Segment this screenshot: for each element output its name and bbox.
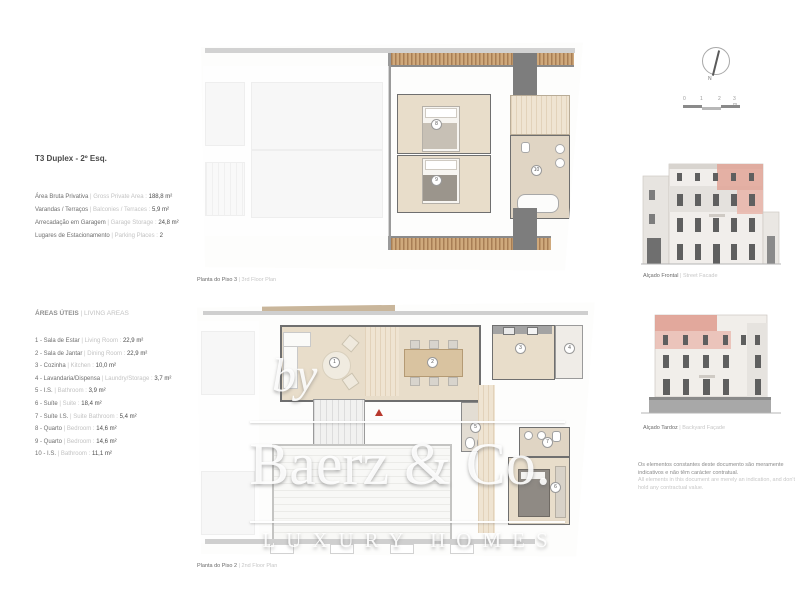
area-row: 10 - I.S. | Bathroom : 11,1 m² (35, 448, 171, 461)
area-label-en: | Bedroom : (64, 426, 95, 432)
summary-block: Área Bruta Privativa | Gross Private Are… (35, 191, 179, 243)
watermark-rule (250, 521, 565, 523)
terrace-edge (262, 303, 395, 311)
window (677, 244, 683, 260)
summary-row: Área Bruta Privativa | Gross Private Are… (35, 191, 179, 204)
storefront (647, 238, 661, 264)
area-label-pt: 5 - I.S. (35, 388, 53, 394)
scale-tick: 2 (718, 96, 721, 102)
scale-tick: 1 (700, 96, 703, 102)
window (755, 379, 761, 395)
highlight-unit-area (717, 164, 763, 190)
area-value: 14,6 m² (96, 439, 116, 445)
pillow (425, 160, 457, 170)
window (723, 379, 729, 395)
window (741, 335, 746, 345)
neighbour-unit (203, 66, 389, 236)
window (663, 355, 669, 368)
balcony (699, 375, 715, 378)
entrance-marker (375, 409, 383, 416)
living-areas-list: 1 - Sala de Estar | Living Room : 22,9 m… (35, 335, 171, 461)
summary-row: Arrecadação em Garagem | Garage Storage … (35, 217, 179, 230)
window (663, 379, 670, 395)
window (713, 194, 719, 206)
window (723, 355, 729, 368)
door (703, 379, 710, 395)
chair (448, 340, 458, 349)
shaft (513, 208, 537, 250)
area-label-en: | Bedroom : (64, 439, 95, 445)
area-label-en: | Suite Bathroom : (70, 414, 118, 420)
area-label-pt: 7 - Suíte I.S. (35, 414, 68, 420)
window (731, 218, 737, 232)
compass-icon (702, 47, 730, 75)
area-label-pt: 8 - Quarto (35, 426, 62, 432)
window (713, 173, 718, 181)
area-label-pt: 6 - Suíte (35, 401, 58, 407)
area-row: 9 - Quarto | Bedroom : 14,6 m² (35, 436, 171, 449)
area-row: 4 - Lavandaria/Dispensa | Laundry/Storag… (35, 373, 171, 386)
area-value: 11,1 m² (92, 451, 112, 457)
area-value: 5,4 m² (120, 414, 137, 420)
entry-door (713, 244, 720, 264)
chair (429, 377, 439, 386)
room-badge: 10 (531, 165, 542, 176)
area-label-en: | Bathroom : (58, 451, 91, 457)
floor2-caption: Planta do Piso 2 | 2nd Floor Plan (197, 563, 277, 569)
heading-en: | LIVING AREAS (81, 310, 129, 317)
disclaimer-en: All elements in this document are merely… (638, 477, 796, 492)
area-value: 3,9 m² (89, 388, 106, 394)
toilet (521, 142, 530, 153)
area-label-pt: 10 - I.S. (35, 451, 56, 457)
scale-tick: 0 (683, 96, 686, 102)
room-badge: 3 (515, 343, 526, 354)
window (731, 173, 736, 181)
window (749, 194, 755, 206)
bathroom-10 (510, 135, 570, 219)
scale-segment (702, 107, 721, 110)
summary-row: Lugares de Estacionamento | Parking Plac… (35, 230, 179, 243)
area-row: 1 - Sala de Estar | Living Room : 22,9 m… (35, 335, 171, 348)
staircase (510, 95, 570, 135)
brochure-page: T3 Duplex - 2º Esq. Área Bruta Privativa… (0, 0, 800, 600)
caption-en: | Street Facade (680, 273, 718, 279)
window (683, 335, 688, 345)
watermark-tagline: LUXURY HOMES (240, 528, 570, 553)
area-label-en: | Bathroom : (54, 388, 87, 394)
wood-floor-band (365, 327, 399, 396)
area-label-pt: 1 - Sala de Estar (35, 338, 80, 344)
window (695, 194, 701, 206)
floor-plan-3: 8 9 10 (195, 40, 595, 273)
window (695, 244, 701, 260)
window (683, 379, 689, 395)
area-label-pt: 3 - Cozinha (35, 363, 66, 369)
scale-bar: 0 1 2 3 m (683, 96, 741, 112)
caption-en: | 2nd Floor Plan (239, 563, 278, 569)
garage-door (767, 236, 775, 264)
sofa-chaise (283, 332, 311, 347)
wall-cap (649, 397, 771, 400)
area-row: 3 - Cozinha | Kitchen : 10,0 m² (35, 360, 171, 373)
unit-floor3: 8 9 10 (389, 66, 581, 236)
chair (448, 377, 458, 386)
area-value: 22,9 m² (127, 351, 147, 357)
summary-label-pt: Arrecadação em Garagem (35, 220, 106, 226)
summary-label-en: | Gross Private Area : (90, 194, 147, 200)
window (683, 355, 689, 368)
window (749, 173, 754, 181)
caption-en: | Backyard Façade (679, 425, 725, 431)
back-elevation-drawing (641, 303, 781, 421)
caption-pt: Alçado Frontal (643, 273, 678, 279)
room-badge: 9 (431, 175, 442, 186)
sink (555, 158, 565, 168)
summary-label-en: | Garage Storage : (107, 220, 156, 226)
fade-overlay (203, 66, 389, 236)
compass-north-label: N (708, 76, 712, 82)
area-label-pt: 9 - Quarto (35, 439, 62, 445)
area-label-en: | Living Room : (81, 338, 121, 344)
watermark-brand: Baerz & Co. (235, 430, 565, 499)
summary-row: Varandas / Terraços | Balconies / Terrac… (35, 204, 179, 217)
balcony (709, 214, 725, 217)
caption-pt: Planta do Piso 2 (197, 563, 237, 569)
summary-label-en: | Balconies / Terraces : (90, 207, 150, 213)
room-badge: 2 (427, 357, 438, 368)
window (755, 335, 760, 345)
window (677, 218, 683, 232)
area-value: 14,6 m² (96, 426, 116, 432)
area-row: 2 - Sala de Jantar | Dining Room : 22,9 … (35, 348, 171, 361)
room-badge: 1 (329, 357, 340, 368)
summary-value: 188,8 m² (149, 194, 173, 200)
living-areas-heading: ÁREAS ÚTEIS | LIVING AREAS (35, 310, 129, 317)
wall (203, 311, 588, 315)
watermark-by: by (272, 348, 317, 403)
area-row: 5 - I.S. | Bathroom : 3,9 m² (35, 385, 171, 398)
back-elevation-caption: Alçado Tardoz | Backyard Façade (643, 425, 725, 431)
window (695, 173, 700, 181)
pillow (425, 108, 457, 118)
armchair (341, 334, 359, 352)
shaft (513, 53, 537, 95)
area-label-pt: 4 - Lavandaria/Dispensa (35, 376, 100, 382)
heading-pt: ÁREAS ÚTEIS (35, 310, 79, 317)
compass-needle (712, 50, 720, 76)
window (649, 214, 655, 224)
floor3-caption: Planta do Piso 3 | 3rd Floor Plan (197, 277, 276, 283)
area-row: 7 - Suíte I.S. | Suite Bathroom : 5,4 m² (35, 411, 171, 424)
area-label-en: | Kitchen : (67, 363, 94, 369)
summary-value: 5,9 m² (152, 207, 169, 213)
kitchen-counter (493, 326, 552, 334)
disclaimer-pt: Os elementos constantes deste documento … (638, 462, 796, 477)
chair (429, 340, 439, 349)
watermark-rule (250, 421, 565, 423)
sink (555, 144, 565, 154)
window (723, 335, 728, 345)
window (713, 218, 719, 232)
hob (503, 327, 515, 335)
area-value: 18,4 m² (81, 401, 101, 407)
unit-title: T3 Duplex - 2º Esq. (35, 154, 107, 163)
chair (410, 340, 420, 349)
window (677, 194, 683, 206)
window (695, 218, 701, 232)
summary-label-pt: Área Bruta Privativa (35, 194, 88, 200)
area-label-en: | Laundry/Storage : (102, 376, 153, 382)
window (755, 355, 761, 368)
window (749, 218, 755, 232)
window (731, 194, 737, 206)
summary-value: 24,8 m² (158, 220, 178, 226)
window (703, 335, 708, 345)
summary-label-pt: Lugares de Estacionamento (35, 233, 110, 239)
balcony-deck (391, 53, 574, 65)
disclaimer: Os elementos constantes deste documento … (638, 462, 796, 492)
summary-label-pt: Varandas / Terraços (35, 207, 88, 213)
area-label-en: | Dining Room : (84, 351, 125, 357)
caption-pt: Alçado Tardoz (643, 425, 678, 431)
room-badge: 8 (431, 119, 442, 130)
scale-segment (683, 105, 702, 108)
highlight-roof-area (655, 315, 717, 331)
caption-pt: Planta do Piso 3 (197, 277, 237, 283)
summary-value: 2 (160, 233, 163, 239)
summary-label-en: | Parking Places : (111, 233, 158, 239)
window (649, 190, 655, 200)
sink (527, 327, 538, 335)
bed (422, 106, 460, 152)
area-label-en: | Suite : (59, 401, 79, 407)
area-value: 10,0 m² (96, 363, 116, 369)
room-badge: 4 (564, 343, 575, 354)
window (663, 335, 668, 345)
scale-segment (721, 105, 740, 108)
area-row: 6 - Suíte | Suite : 18,4 m² (35, 398, 171, 411)
area-label-pt: 2 - Sala de Jantar (35, 351, 82, 357)
window (703, 355, 709, 368)
front-elevation-drawing (641, 156, 781, 270)
area-row: 8 - Quarto | Bedroom : 14,6 m² (35, 423, 171, 436)
window (677, 173, 682, 181)
caption-en: | 3rd Floor Plan (239, 277, 277, 283)
area-value: 22,9 m² (123, 338, 143, 344)
front-elevation-caption: Alçado Frontal | Street Facade (643, 273, 718, 279)
chair (410, 377, 420, 386)
window (731, 244, 737, 260)
window (749, 244, 755, 260)
area-value: 3,7 m² (154, 376, 171, 382)
